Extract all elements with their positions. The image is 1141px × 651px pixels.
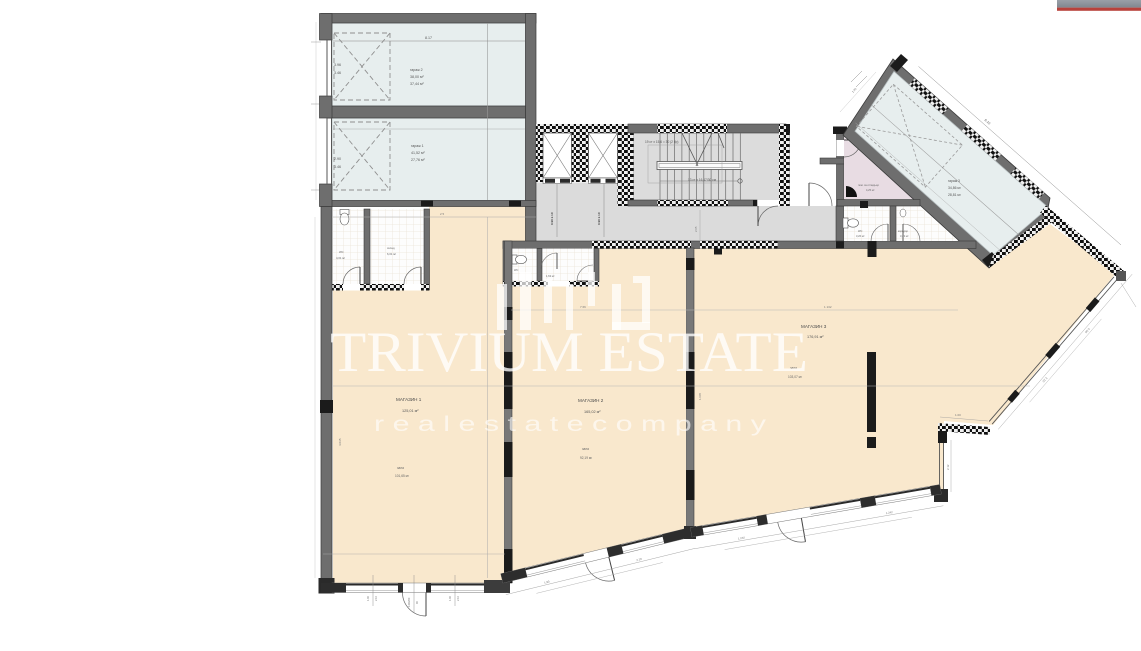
- svg-text:склад: склад: [387, 246, 395, 250]
- svg-text:7 66: 7 66: [580, 305, 586, 309]
- svg-text:176,91 м²: 176,91 м²: [807, 335, 824, 339]
- svg-text:3,43 м²: 3,43 м²: [900, 234, 909, 238]
- svg-text:WC: WC: [858, 229, 862, 233]
- svg-text:3,26 м²: 3,26 м²: [856, 234, 865, 238]
- svg-text:WC: WC: [339, 250, 344, 254]
- svg-text:зала: зала: [397, 466, 404, 470]
- svg-text:3.46: 3.46: [334, 71, 341, 75]
- svg-text:пом. за отпадъци: пом. за отпадъци: [858, 184, 879, 187]
- svg-text:38,00 м²: 38,00 м²: [410, 75, 424, 79]
- svg-text:2.10: 2.10: [456, 595, 460, 601]
- svg-text:3.46: 3.46: [334, 165, 341, 169]
- svg-text:1.90: 1.90: [448, 595, 452, 601]
- svg-text:13 ст х 16,47/30 см: 13 ст х 16,47/30 см: [688, 178, 716, 182]
- svg-text:37,44 м²: 37,44 м²: [410, 82, 424, 86]
- svg-text:МАГАЗИН 2: МАГАЗИН 2: [578, 398, 604, 403]
- svg-text:2.10: 2.10: [374, 595, 378, 601]
- svg-text:19 ст х 15,6 = 30 (2 бр): 19 ст х 15,6 = 30 (2 бр): [645, 140, 679, 144]
- svg-text:2.05: 2.05: [694, 226, 698, 232]
- svg-text:0.90 2.10: 0.90 2.10: [597, 212, 601, 225]
- svg-text:r e a l e s t a t e c o m: r e a l e s t a t e c o m p a n y: [374, 413, 767, 436]
- svg-text:гараж 3: гараж 3: [948, 179, 960, 183]
- svg-text:0.90 2.10: 0.90 2.10: [550, 212, 554, 225]
- svg-text:140/260: 140/260: [407, 597, 411, 607]
- svg-text:6,01 м²: 6,01 м²: [387, 252, 396, 256]
- svg-text:WC: WC: [514, 268, 518, 272]
- svg-text:1.00: 1.00: [955, 413, 961, 417]
- svg-text:101,65 м²: 101,65 м²: [395, 474, 409, 478]
- svg-text:2.90: 2.90: [334, 157, 341, 161]
- svg-text:1,63 м²: 1,63 м²: [546, 274, 555, 278]
- svg-text:27,76 м²: 27,76 м²: [411, 158, 425, 162]
- svg-text:34,86 м²: 34,86 м²: [948, 186, 962, 190]
- svg-text:8.17: 8.17: [425, 36, 432, 40]
- svg-text:4,25 м²: 4,25 м²: [866, 188, 875, 192]
- svg-text:1 132: 1 132: [824, 305, 832, 309]
- svg-text:2.12: 2.12: [946, 464, 950, 470]
- svg-text:4,01 м²: 4,01 м²: [336, 256, 345, 260]
- svg-text:3.96: 3.96: [334, 63, 341, 67]
- svg-text:МАГАЗИН 1: МАГАЗИН 1: [396, 397, 422, 402]
- svg-text:92,19 м²: 92,19 м²: [580, 456, 592, 460]
- svg-text:1.045: 1.045: [698, 393, 702, 400]
- svg-text:41,52 м²: 41,52 м²: [411, 151, 425, 155]
- svg-text:TRIVIUM ESTATE: TRIVIUM ESTATE: [330, 321, 808, 384]
- svg-text:коридор: коридор: [898, 230, 908, 233]
- svg-text:2 5: 2 5: [440, 212, 445, 216]
- svg-text:гараж 1: гараж 1: [411, 144, 424, 148]
- svg-text:1.90: 1.90: [366, 595, 370, 601]
- svg-text:зала: зала: [582, 447, 589, 451]
- svg-text:28,81 м²: 28,81 м²: [948, 193, 962, 197]
- svg-text:4.035: 4.035: [338, 438, 342, 446]
- svg-text:гараж 2: гараж 2: [410, 68, 423, 72]
